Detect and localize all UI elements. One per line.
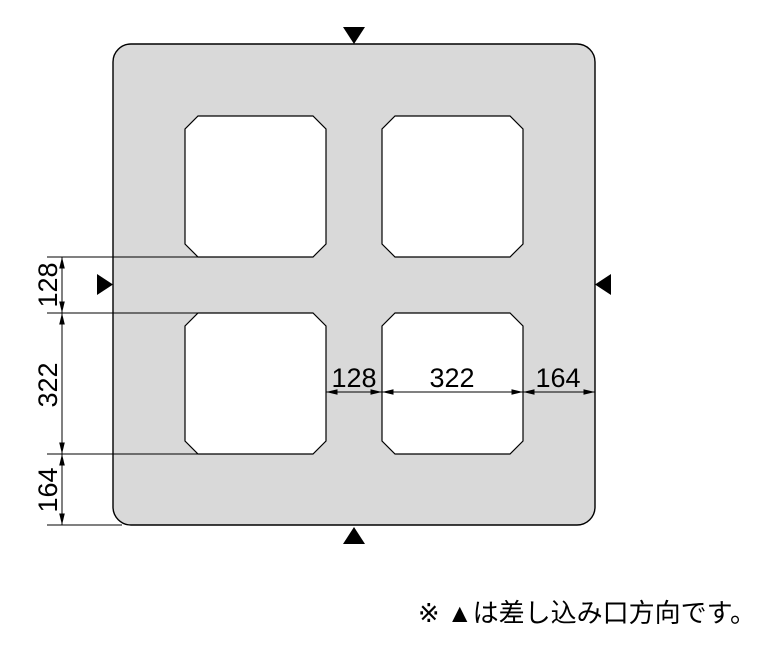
dim-label-vertical-322: 322 [33,362,63,407]
insertion-arrow-left-icon [97,274,113,295]
insertion-arrow-right-icon [595,274,611,295]
dim-label-vertical-164: 164 [33,467,63,512]
block-hole-top-left [185,116,326,257]
drawing-canvas: 128 322 164 128 322 164 [0,0,780,650]
dim-label-horizontal-128: 128 [331,363,376,393]
block-body [113,44,595,525]
block-hole-top-right [382,116,523,257]
dim-label-horizontal-164: 164 [535,363,580,393]
block-dimension-diagram: 128 322 164 128 322 164 [0,0,780,650]
insertion-arrow-top-icon [343,27,365,44]
horizontal-dimensions: 128 322 164 [326,363,595,395]
block-hole-bottom-left [185,313,326,454]
insertion-arrow-bottom-icon [343,527,365,544]
note-text: ※ ▲は差し込み口方向です。 [418,598,756,628]
dim-label-vertical-128: 128 [33,262,63,307]
dim-label-horizontal-322: 322 [429,363,474,393]
block-outline [113,44,595,525]
